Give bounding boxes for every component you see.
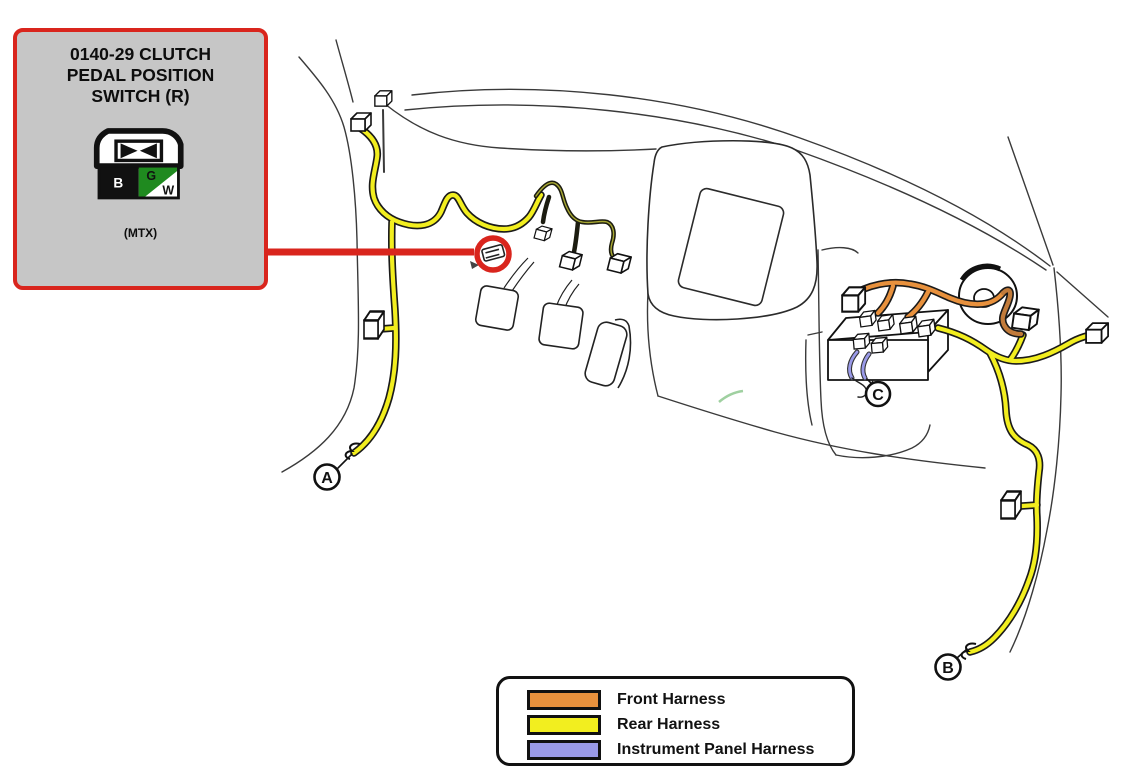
callout-title-line-3: SWITCH (R) xyxy=(17,86,264,107)
instrument-panel-harness-swatch xyxy=(527,740,601,760)
pin-letter-b: B xyxy=(113,176,123,191)
variant-note: (MTX) xyxy=(17,226,264,240)
clutch-pedal xyxy=(475,285,519,331)
callout-title-line-2: PEDAL POSITION xyxy=(17,65,264,86)
legend-label-rear: Rear Harness xyxy=(617,716,720,734)
location-label-c: C xyxy=(872,387,884,404)
pedals xyxy=(475,258,631,388)
pin-letter-g: G xyxy=(146,169,156,183)
console-green-mark xyxy=(719,391,743,402)
location-label-b: B xyxy=(942,660,954,677)
pedal-harness xyxy=(536,183,616,260)
legend-label-instrument: Instrument Panel Harness xyxy=(617,741,814,759)
callout-title: 0140-29 CLUTCH PEDAL POSITION SWITCH (R) xyxy=(17,44,264,107)
front-harness-swatch xyxy=(527,690,601,710)
legend-row-front: Front Harness xyxy=(527,687,852,712)
rear-harness-swatch xyxy=(527,715,601,735)
center-console xyxy=(647,141,817,402)
legend-row-rear: Rear Harness xyxy=(527,712,852,737)
callout-box: 0140-29 CLUTCH PEDAL POSITION SWITCH (R)… xyxy=(13,28,268,290)
harness-end-hooks xyxy=(346,444,976,659)
accelerator-pedal xyxy=(583,320,629,388)
wiring-location-diagram: A B C 0140-29 CLUTCH PEDAL POSITION SWIT… xyxy=(0,0,1128,782)
location-label-a: A xyxy=(321,470,333,487)
harness-legend: Front Harness Rear Harness Instrument Pa… xyxy=(496,676,855,766)
pin-letter-w: W xyxy=(162,184,174,198)
connector-icon: B G W xyxy=(17,123,264,212)
callout-title-line-1: 0140-29 CLUTCH xyxy=(17,44,264,65)
location-labels: A B C xyxy=(315,379,968,680)
legend-row-instrument: Instrument Panel Harness xyxy=(527,737,852,762)
legend-label-front: Front Harness xyxy=(617,691,725,709)
brake-pedal xyxy=(538,302,583,349)
